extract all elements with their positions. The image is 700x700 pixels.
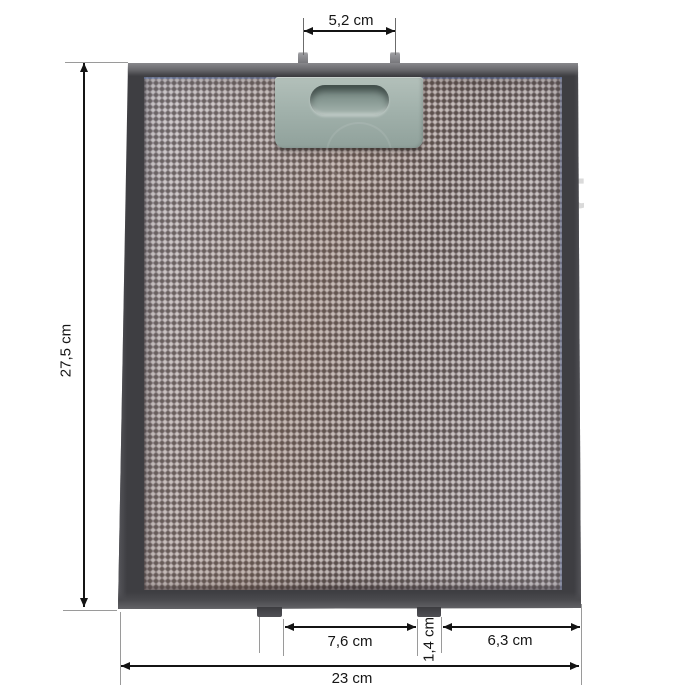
bottom-tab-left <box>257 607 282 617</box>
mesh-sheen-circle <box>326 122 392 184</box>
latch-grip-recess <box>310 85 389 115</box>
dim-label-tab-to-edge: 6,3 cm <box>470 632 550 649</box>
dim-arrow-tab-gap <box>285 626 416 628</box>
extension-line-pin-right <box>395 18 396 55</box>
dim-arrow-tab-to-edge <box>443 626 580 628</box>
product-dimension-diagram: t 5,2 cm 27,5 cm 7,6 cm 1,4 cm 6,3 cm 23… <box>0 0 700 700</box>
dim-label-height: 27,5 cm <box>58 311 75 391</box>
extension-line-tab1-right <box>283 619 284 656</box>
dim-label-tab-width: 1,4 cm <box>421 600 438 680</box>
dim-label-pin-spacing: 5,2 cm <box>311 12 391 29</box>
extension-line-pin-left <box>303 18 304 55</box>
extension-line-height-top <box>65 62 128 63</box>
extension-line-width-left <box>120 612 121 685</box>
dim-arrow-pin-spacing <box>304 30 395 32</box>
extension-line-width-right <box>581 604 582 685</box>
dim-arrow-width <box>121 665 579 667</box>
dim-arrow-height <box>83 63 85 607</box>
extension-line-height-bottom <box>63 610 117 611</box>
extension-line-tab2-left <box>417 619 418 656</box>
dim-label-tab-gap: 7,6 cm <box>310 633 390 650</box>
extension-line-tab1-left <box>259 617 260 653</box>
extension-line-tab2-right <box>441 617 442 653</box>
dim-label-width: 23 cm <box>312 670 392 687</box>
